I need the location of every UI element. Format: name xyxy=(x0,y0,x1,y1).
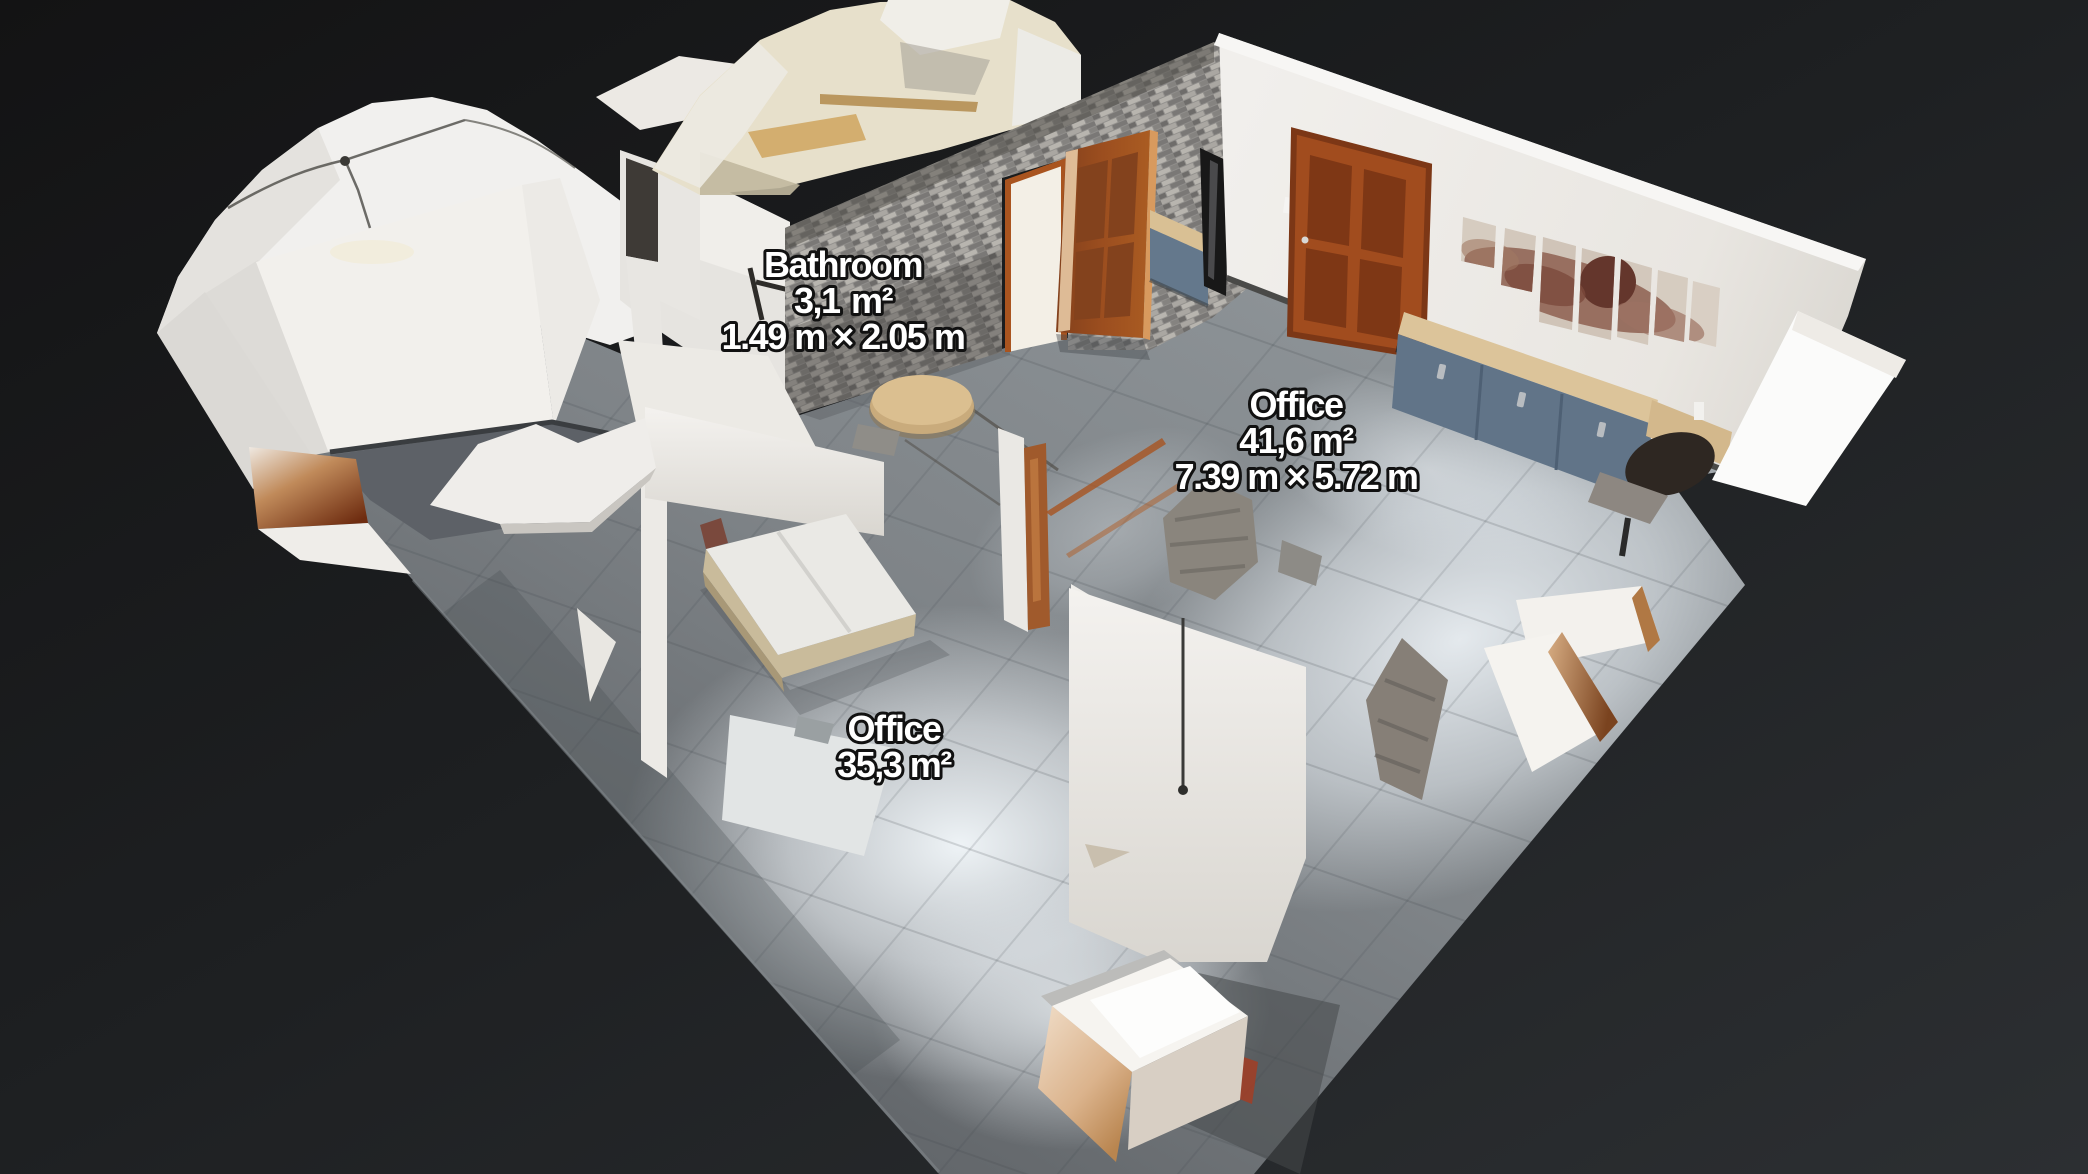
svg-text:3,1 m²: 3,1 m² xyxy=(794,280,893,321)
svg-text:Office: Office xyxy=(847,708,941,749)
svg-text:41,6 m²: 41,6 m² xyxy=(1239,420,1354,461)
svg-text:Bathroom: Bathroom xyxy=(764,244,922,285)
svg-text:1.49 m × 2.05 m: 1.49 m × 2.05 m xyxy=(722,316,965,357)
svg-text:Office: Office xyxy=(1249,384,1343,425)
svg-text:35,3 m²: 35,3 m² xyxy=(837,744,952,785)
svg-text:7.39 m × 5.72 m: 7.39 m × 5.72 m xyxy=(1175,456,1418,497)
